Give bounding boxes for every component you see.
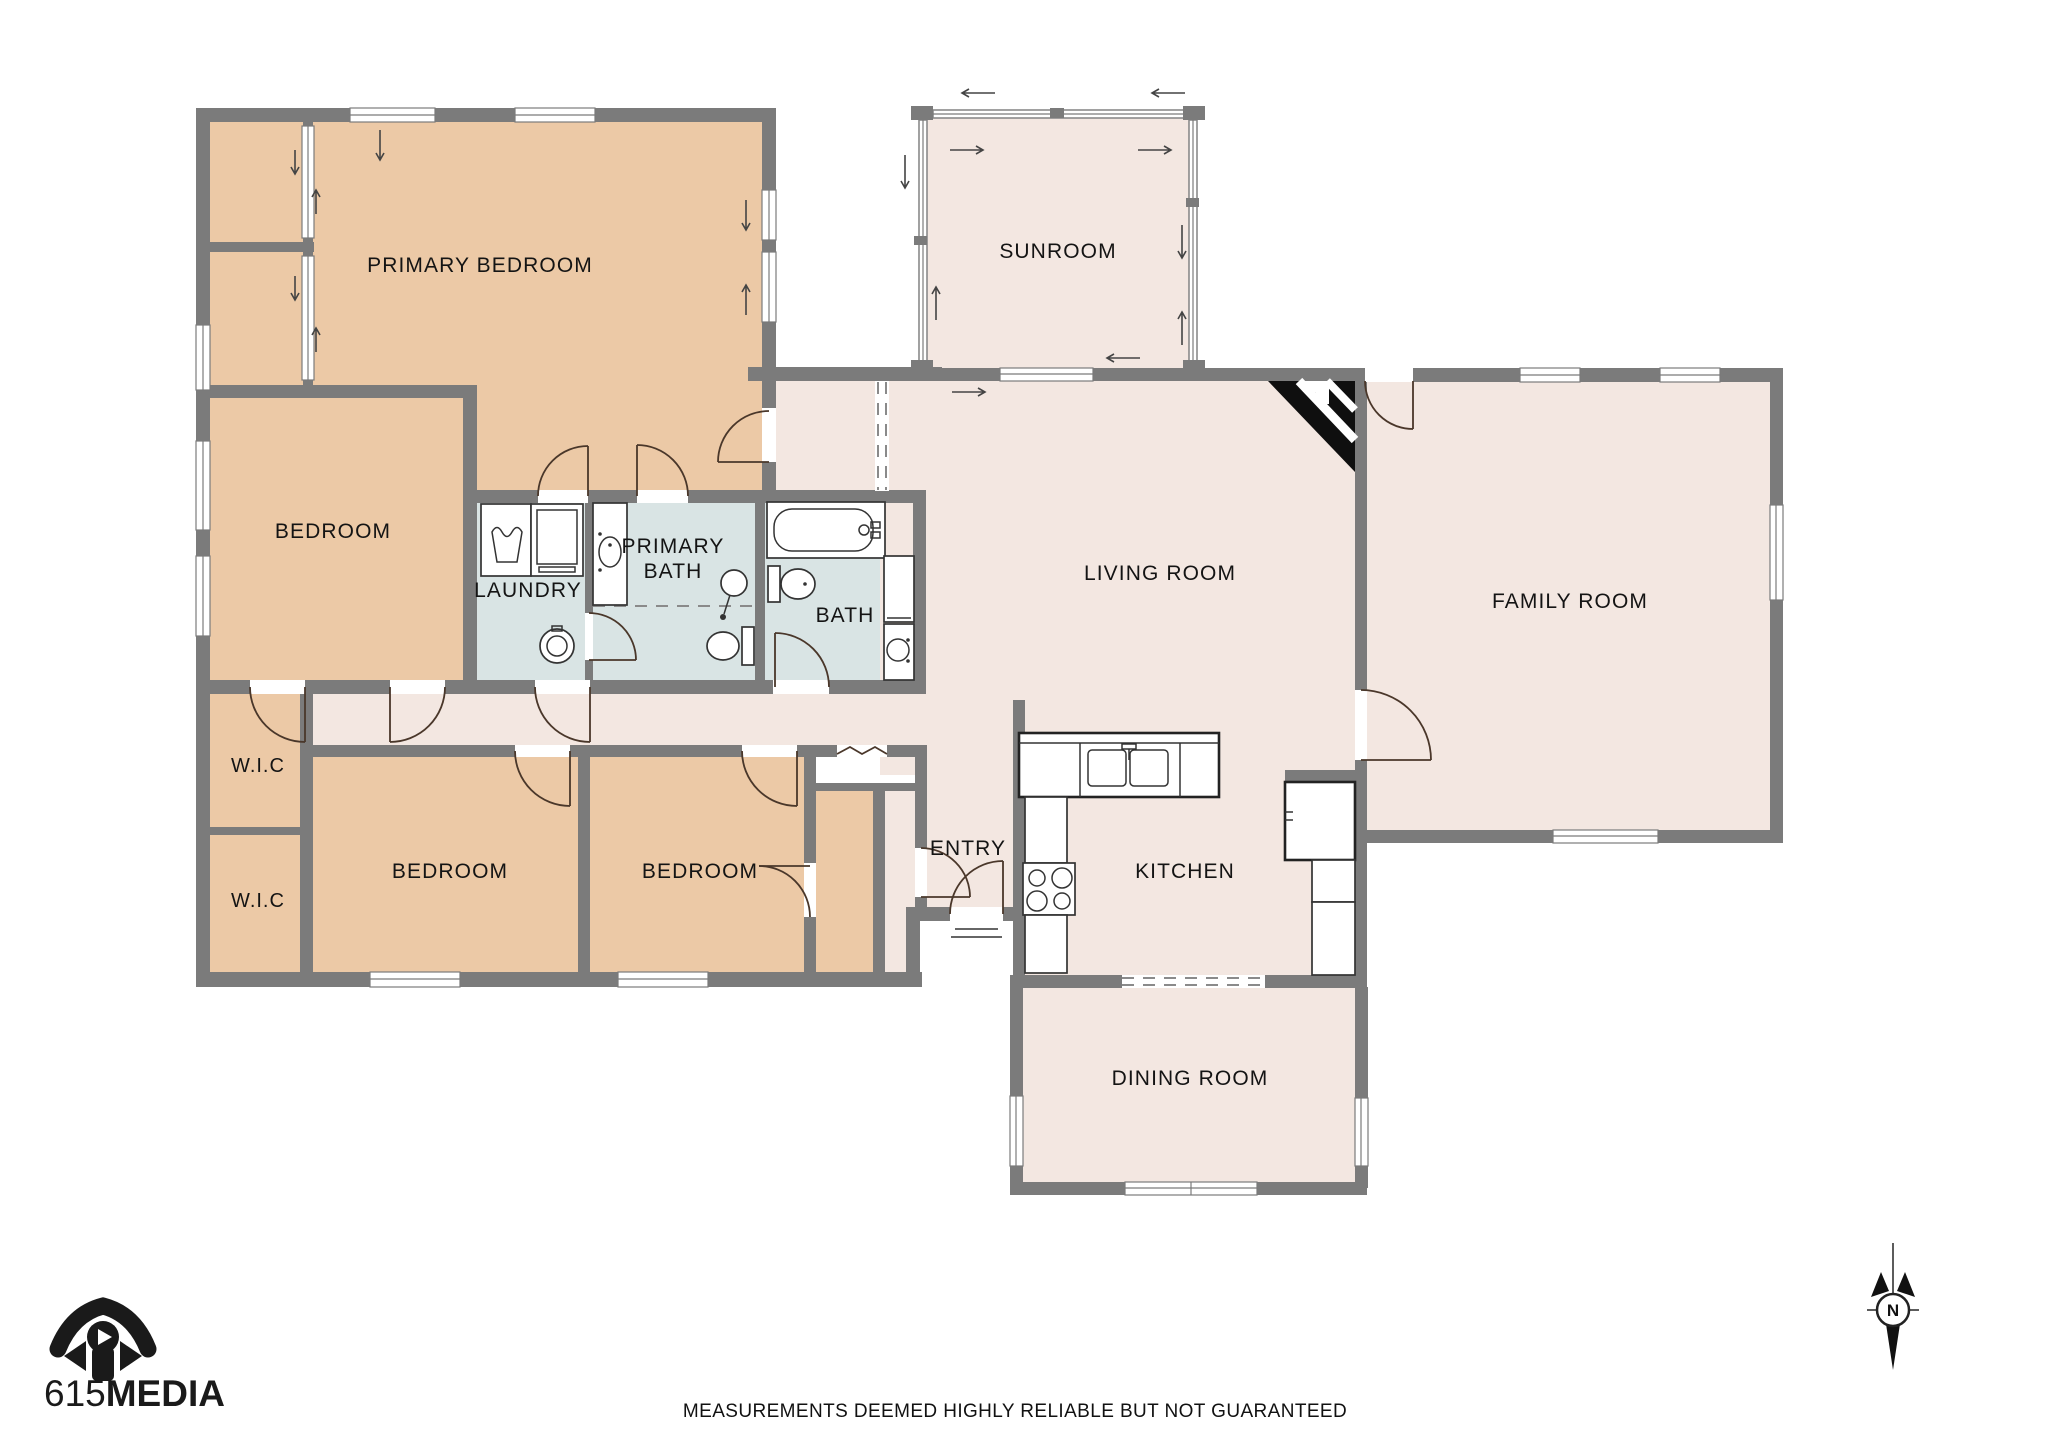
window xyxy=(1520,368,1580,382)
label-primary-bath-1: PRIMARY xyxy=(622,535,725,558)
bifold-closet-door xyxy=(837,745,887,757)
logo-text: 615MEDIA xyxy=(44,1373,225,1414)
sliding-glass-door xyxy=(1000,368,1093,381)
dryer xyxy=(531,504,583,576)
stove xyxy=(1023,863,1075,915)
label-wic-lower: W.I.C xyxy=(231,890,285,912)
compass-n-label: N xyxy=(1887,1301,1899,1320)
label-sunroom: SUNROOM xyxy=(999,240,1116,263)
label-wic-upper: W.I.C xyxy=(231,755,285,777)
lobe-floor xyxy=(770,375,882,495)
sunroom-post xyxy=(911,106,933,120)
window xyxy=(350,108,435,122)
label-dining-room: DINING ROOM xyxy=(1112,1067,1269,1090)
sunroom-post xyxy=(1183,360,1205,370)
opening-dashed-kitchen-dining xyxy=(1122,975,1265,988)
label-bedroom-bottom-right: BEDROOM xyxy=(642,860,758,883)
window xyxy=(196,325,210,390)
label-bath: BATH xyxy=(816,604,875,627)
label-laundry: LAUNDRY xyxy=(474,579,582,602)
compass-north-arrow: N xyxy=(1867,1243,1919,1370)
company-logo: 615MEDIA xyxy=(44,1306,225,1414)
label-primary-bedroom: PRIMARY BEDROOM xyxy=(367,254,593,277)
window xyxy=(1355,1098,1368,1166)
window xyxy=(515,108,595,122)
floor-plan-canvas: PRIMARY BEDROOM SUNROOM BEDROOM LAUNDRY … xyxy=(0,0,2048,1448)
disclaimer-text: MEASUREMENTS DEEMED HIGHLY RELIABLE BUT … xyxy=(683,1401,1347,1422)
window xyxy=(196,441,210,530)
label-entry: ENTRY xyxy=(930,837,1006,860)
closet-a-floor xyxy=(812,786,878,976)
label-family-room: FAMILY ROOM xyxy=(1492,590,1648,613)
opening-dashed-lobe xyxy=(875,381,889,491)
logo-house-icon xyxy=(58,1306,148,1381)
window xyxy=(618,972,708,987)
kitchen-counter-top xyxy=(1019,733,1219,797)
label-bedroom-left: BEDROOM xyxy=(275,520,391,543)
window xyxy=(762,190,776,240)
sunroom-post xyxy=(1186,198,1199,207)
window xyxy=(1010,1096,1023,1166)
window xyxy=(1660,368,1720,382)
hallway-floor xyxy=(308,686,924,752)
kitchen-counter-right-lower xyxy=(1312,902,1355,975)
window xyxy=(1125,1182,1257,1195)
label-kitchen: KITCHEN xyxy=(1135,860,1235,883)
bath-toilet xyxy=(768,566,815,602)
bath-linen-cabinet xyxy=(884,556,914,622)
bath-vanity xyxy=(884,624,914,680)
kitchen-counter-left-lower xyxy=(1025,915,1067,973)
window xyxy=(1770,505,1783,600)
label-primary-bath-2: BATH xyxy=(644,560,703,583)
floor-plan-page: PRIMARY BEDROOM SUNROOM BEDROOM LAUNDRY … xyxy=(0,0,2048,1448)
window xyxy=(762,252,776,322)
sunroom-post xyxy=(911,360,933,370)
window xyxy=(1553,830,1658,843)
refrigerator xyxy=(1285,782,1355,860)
sunroom-post xyxy=(1050,108,1064,118)
window xyxy=(370,972,460,987)
window xyxy=(196,556,210,636)
sunroom-post xyxy=(914,236,927,245)
sunroom-post xyxy=(1183,106,1205,120)
kitchen-counter-left-upper xyxy=(1025,797,1067,863)
bathtub xyxy=(767,502,885,558)
kitchen-counter-right-upper xyxy=(1312,860,1355,902)
label-living-room: LIVING ROOM xyxy=(1084,562,1236,585)
label-bedroom-bottom-left: BEDROOM xyxy=(392,860,508,883)
washer xyxy=(481,504,531,576)
